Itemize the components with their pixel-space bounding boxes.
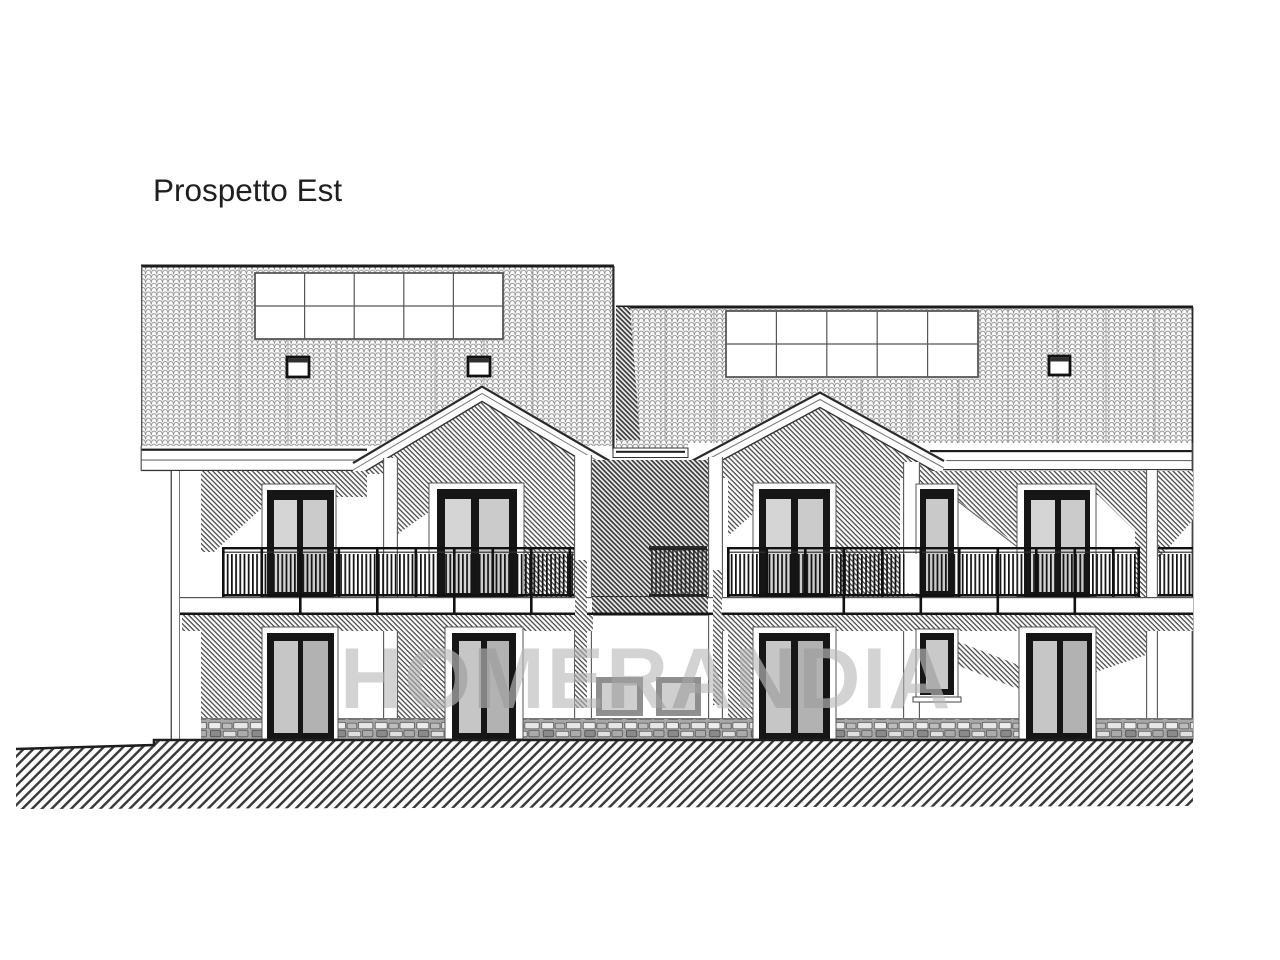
svg-text:HOMERANDIA: HOMERANDIA [340,631,952,727]
svg-text:Prospetto Est: Prospetto Est [153,172,342,208]
